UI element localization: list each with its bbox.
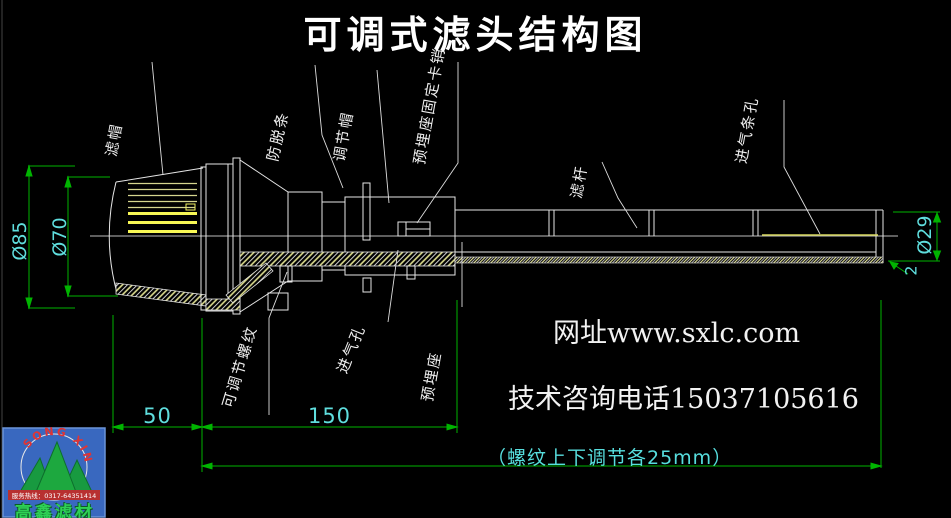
embedded-seat bbox=[226, 183, 455, 303]
dim-body-length: 150 bbox=[202, 404, 457, 428]
leader-lines bbox=[152, 62, 820, 415]
dim-thread-adjust-note: （螺纹上下调节各25mm） bbox=[487, 443, 732, 470]
company-logo: SONG XIN 服务热线：0317-64351414 高鑫滤材 bbox=[0, 424, 110, 518]
dim-rod-diameter: Ø29 bbox=[914, 205, 936, 265]
fixing-pin bbox=[398, 222, 430, 236]
dim-wall-thickness: 2 bbox=[902, 261, 921, 281]
cap-slots bbox=[128, 184, 197, 232]
cad-drawing-screenshot: 可调式滤头结构图 滤帽 防脱条 调节帽 预埋座固定卡销 滤杆 进气条孔 可调节螺… bbox=[0, 0, 951, 518]
filter-cap bbox=[109, 168, 206, 306]
dim-cap-length: 50 bbox=[113, 404, 202, 428]
logo-company-name: 高鑫滤材 bbox=[6, 498, 104, 518]
drawing-canvas bbox=[0, 0, 951, 518]
watermark-website: 网址www.sxlc.com bbox=[553, 311, 800, 350]
rod-joints bbox=[549, 210, 758, 236]
filter-rod bbox=[455, 210, 883, 263]
dim-cap-inner-diameter: Ø70 bbox=[49, 207, 71, 267]
dim-cap-outer-diameter: Ø85 bbox=[9, 211, 31, 271]
watermark-phone: 技术咨询电话15037105616 bbox=[508, 377, 859, 416]
drawing-title: 可调式滤头结构图 bbox=[0, 4, 951, 59]
